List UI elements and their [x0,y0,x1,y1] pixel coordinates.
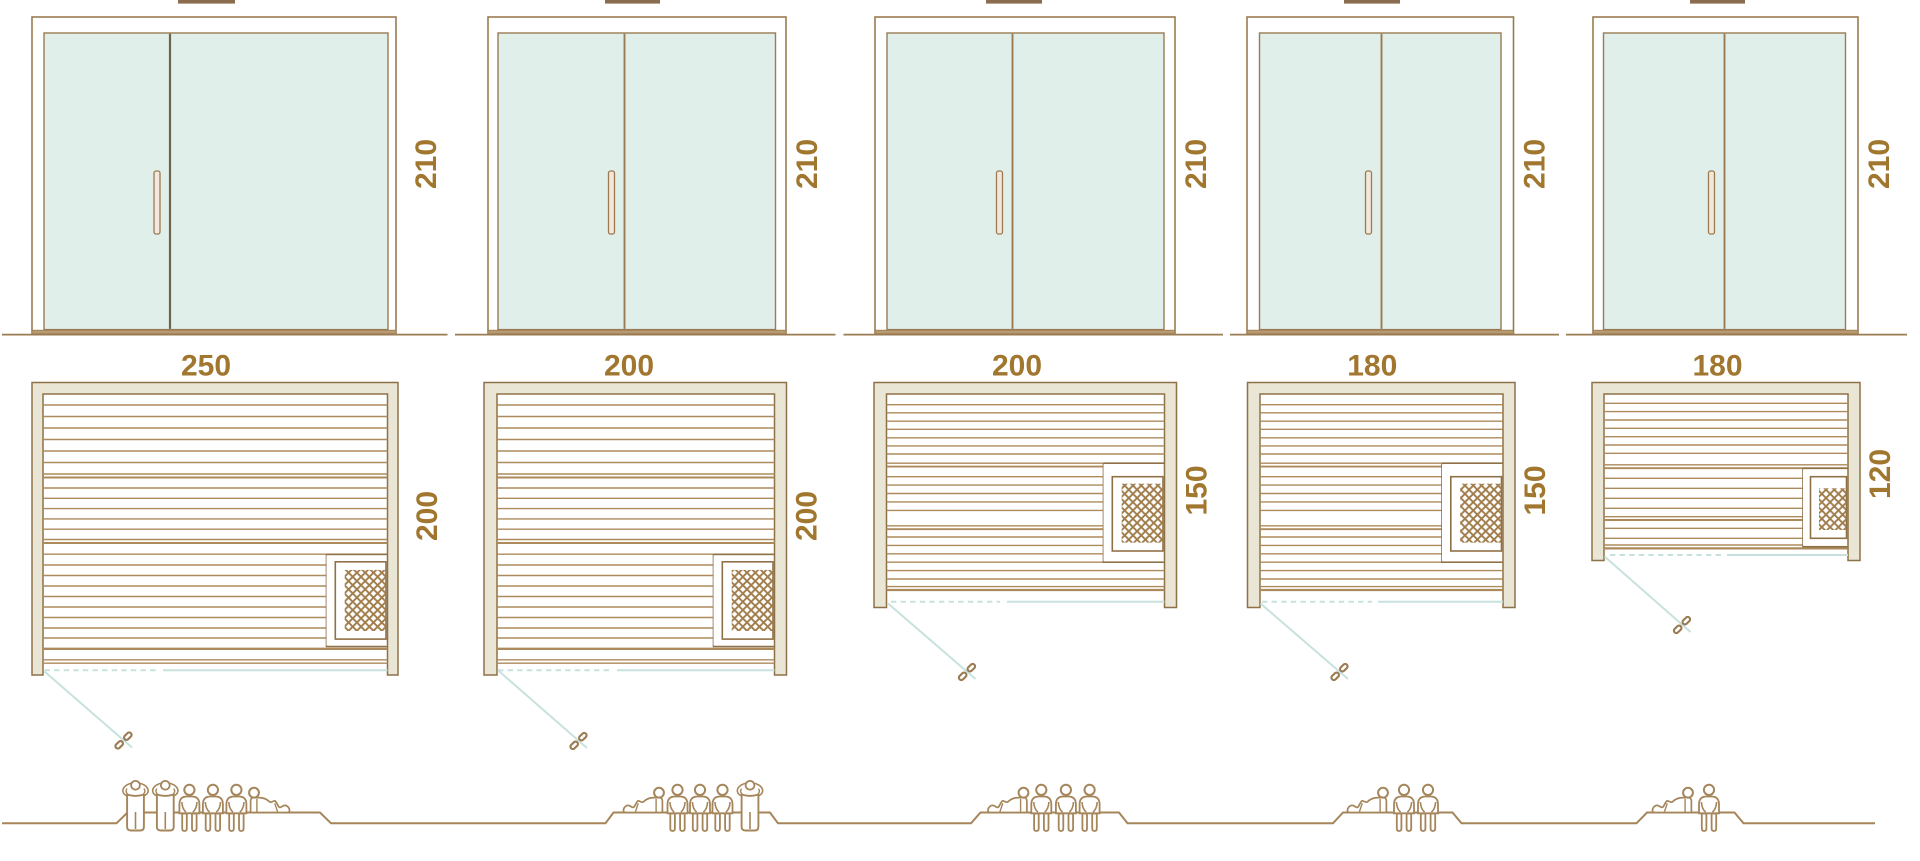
svg-text:210: 210 [1180,139,1213,189]
svg-text:250: 250 [181,350,231,383]
svg-text:120: 120 [1864,449,1897,499]
svg-text:210: 210 [410,139,443,189]
svg-text:210: 210 [1863,139,1896,189]
svg-text:180: 180 [1347,350,1397,383]
svg-text:200: 200 [992,350,1042,383]
svg-text:200: 200 [411,491,444,541]
svg-text:150: 150 [1181,465,1214,515]
svg-text:200: 200 [604,350,654,383]
svg-text:200: 200 [791,491,824,541]
svg-text:210: 210 [1519,139,1552,189]
svg-text:180: 180 [1692,350,1742,383]
svg-text:150: 150 [1519,465,1552,515]
svg-text:210: 210 [791,139,824,189]
